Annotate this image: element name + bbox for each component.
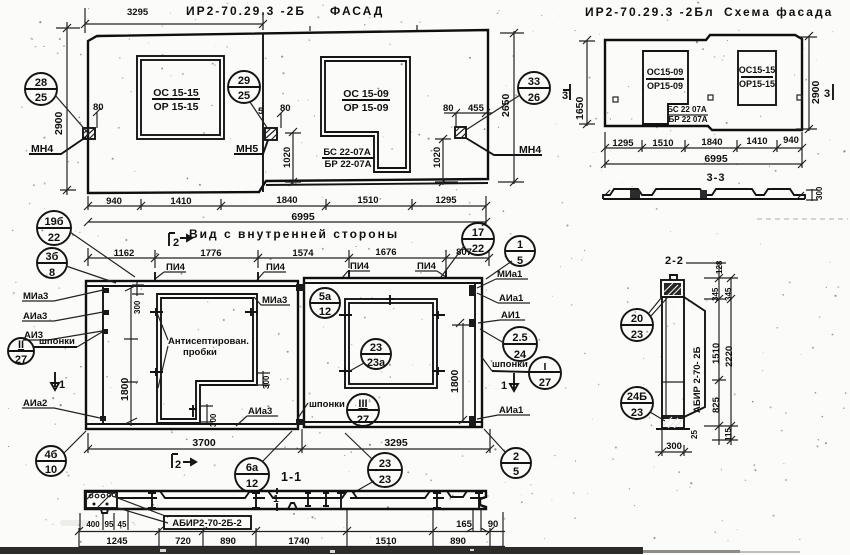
svg-text:2900: 2900	[810, 80, 822, 104]
svg-text:1574: 1574	[292, 248, 314, 259]
svg-text:1295: 1295	[612, 138, 634, 149]
svg-text:300: 300	[262, 375, 271, 389]
svg-text:19б: 19б	[44, 216, 63, 228]
svg-text:ОР15-09: ОР15-09	[647, 81, 683, 91]
svg-text:2: 2	[175, 459, 181, 471]
svg-text:23: 23	[379, 458, 391, 470]
svg-text:1410: 1410	[746, 136, 767, 147]
svg-text:ОС 15-09: ОС 15-09	[343, 88, 389, 100]
svg-text:28: 28	[35, 77, 47, 89]
svg-text:12: 12	[319, 306, 331, 318]
svg-text:АИ1: АИ1	[501, 310, 521, 321]
svg-text:3: 3	[824, 88, 830, 100]
svg-text:8: 8	[49, 267, 55, 279]
svg-text:БС 22-07А: БС 22-07А	[323, 147, 371, 158]
svg-text:115: 115	[724, 428, 733, 441]
svg-text:5а: 5а	[319, 291, 332, 303]
svg-text:1510: 1510	[652, 138, 673, 149]
svg-text:940: 940	[106, 196, 122, 207]
svg-text:27: 27	[539, 377, 551, 389]
svg-text:22: 22	[472, 243, 484, 255]
svg-text:ПИ4: ПИ4	[417, 261, 437, 272]
svg-text:1740: 1740	[288, 536, 309, 547]
svg-text:2: 2	[513, 451, 519, 463]
svg-text:3295: 3295	[384, 437, 408, 449]
svg-text:Вид с внутренней стороны: Вид с внутренней стороны	[189, 227, 399, 241]
svg-text:БР 22 07А: БР 22 07А	[668, 115, 707, 124]
svg-text:1020: 1020	[282, 147, 293, 168]
svg-text:23: 23	[631, 329, 643, 341]
svg-text:400: 400	[86, 520, 100, 529]
svg-text:128: 128	[715, 260, 724, 274]
svg-text:95: 95	[105, 520, 114, 529]
svg-text:1: 1	[517, 239, 523, 251]
svg-text:1510: 1510	[375, 536, 396, 547]
svg-text:890: 890	[450, 536, 466, 547]
svg-text:25: 25	[238, 90, 250, 102]
svg-text:300: 300	[666, 441, 682, 452]
svg-text:3: 3	[562, 90, 568, 102]
svg-text:80: 80	[443, 103, 454, 114]
svg-text:1: 1	[59, 379, 65, 391]
svg-text:ОС 15-15: ОС 15-15	[153, 87, 199, 99]
svg-text:1650: 1650	[574, 96, 586, 120]
svg-text:23: 23	[631, 407, 643, 419]
svg-text:1410: 1410	[170, 196, 191, 207]
svg-text:12: 12	[246, 478, 258, 490]
svg-text:МИа3: МИа3	[23, 291, 48, 302]
svg-text:1-1: 1-1	[281, 470, 302, 484]
svg-text:1295: 1295	[435, 195, 457, 206]
svg-text:БС 22 07А: БС 22 07А	[667, 105, 707, 114]
svg-text:25: 25	[690, 430, 699, 439]
svg-text:ПИ4: ПИ4	[166, 262, 186, 273]
svg-text:23а: 23а	[367, 357, 386, 369]
svg-text:6995: 6995	[704, 153, 728, 165]
svg-text:2: 2	[173, 237, 179, 249]
svg-text:1676: 1676	[375, 247, 396, 258]
svg-text:II: II	[18, 339, 24, 351]
svg-text:МИа1: МИа1	[497, 269, 523, 280]
svg-text:5: 5	[517, 255, 523, 267]
svg-text:1840: 1840	[276, 195, 297, 206]
svg-text:МИа3: МИа3	[262, 295, 287, 306]
svg-text:БР 22-07А: БР 22-07А	[325, 159, 372, 170]
svg-text:1: 1	[273, 493, 279, 505]
svg-text:ОР15-15: ОР15-15	[739, 79, 775, 89]
svg-text:23: 23	[370, 342, 382, 354]
svg-text:345: 345	[724, 287, 733, 301]
svg-text:шпонки: шпонки	[492, 359, 528, 370]
svg-text:10: 10	[45, 464, 57, 476]
svg-text:26: 26	[528, 92, 540, 104]
svg-text:Антисептирован.: Антисептирован.	[168, 336, 249, 347]
svg-text:АИа1: АИа1	[499, 405, 524, 416]
svg-text:1776: 1776	[200, 248, 221, 259]
svg-text:АИа2: АИа2	[23, 398, 47, 409]
svg-text:45: 45	[118, 520, 127, 529]
svg-text:300: 300	[209, 413, 218, 427]
svg-text:345: 345	[711, 287, 720, 301]
svg-text:22: 22	[48, 232, 60, 244]
svg-text:шпонки: шпонки	[309, 399, 345, 410]
svg-text:АИа1: АИа1	[499, 293, 524, 304]
svg-text:4б: 4б	[45, 449, 58, 461]
svg-text:ФАСАД: ФАСАД	[330, 4, 384, 18]
svg-text:ОР 15-09: ОР 15-09	[344, 102, 389, 114]
svg-text:шпонки: шпонки	[39, 336, 75, 347]
svg-text:3б: 3б	[46, 251, 59, 263]
svg-text:300: 300	[133, 300, 142, 314]
svg-text:ОР 15-15: ОР 15-15	[154, 101, 199, 113]
svg-text:АИа3: АИа3	[248, 406, 272, 417]
svg-text:ПИ4: ПИ4	[350, 261, 370, 272]
svg-text:1245: 1245	[106, 536, 128, 547]
svg-text:2900: 2900	[53, 111, 65, 135]
svg-text:1020: 1020	[432, 147, 443, 168]
svg-text:825: 825	[711, 396, 722, 413]
svg-text:940: 940	[783, 135, 799, 146]
svg-text:3700: 3700	[192, 437, 216, 449]
svg-text:АБИР 2-70- 2Б: АБИР 2-70- 2Б	[692, 346, 703, 413]
svg-text:III: III	[358, 398, 367, 410]
svg-text:27: 27	[15, 354, 27, 366]
svg-text:ИР2-70.29.3 -2Бл: ИР2-70.29.3 -2Бл	[585, 5, 715, 19]
svg-text:20: 20	[631, 313, 643, 325]
svg-text:165: 165	[456, 519, 473, 530]
svg-text:ОС15-15: ОС15-15	[739, 65, 776, 75]
svg-text:1: 1	[501, 380, 507, 392]
svg-text:2-2: 2-2	[665, 255, 684, 267]
svg-text:29: 29	[238, 75, 250, 87]
svg-text:3295: 3295	[127, 7, 149, 18]
svg-text:Схема фасада: Схема фасада	[724, 5, 833, 19]
svg-text:6995: 6995	[291, 211, 315, 223]
svg-text:720: 720	[175, 536, 191, 547]
svg-text:2.5: 2.5	[512, 332, 527, 344]
svg-text:ИР2-70.29.3 -2Б: ИР2-70.29.3 -2Б	[186, 4, 306, 18]
svg-text:27: 27	[357, 414, 369, 426]
svg-text:5: 5	[513, 466, 519, 478]
svg-text:25: 25	[35, 92, 47, 104]
svg-text:1840: 1840	[701, 137, 722, 148]
svg-text:2650: 2650	[500, 93, 512, 117]
svg-text:24Б: 24Б	[627, 391, 647, 403]
svg-text:17: 17	[472, 227, 484, 239]
svg-text:1800: 1800	[119, 377, 131, 401]
svg-text:1800: 1800	[449, 369, 461, 393]
svg-text:I: I	[544, 361, 547, 373]
svg-text:890: 890	[220, 536, 236, 547]
svg-text:1510: 1510	[711, 343, 722, 364]
svg-text:3-3: 3-3	[707, 172, 726, 184]
svg-text:455: 455	[468, 103, 485, 114]
svg-text:ПИ4: ПИ4	[266, 262, 286, 273]
svg-text:пробки: пробки	[183, 347, 217, 358]
svg-text:2220: 2220	[724, 346, 735, 367]
svg-text:23: 23	[379, 474, 391, 486]
svg-text:33: 33	[528, 76, 540, 88]
svg-text:1162: 1162	[114, 248, 135, 259]
svg-text:1510: 1510	[357, 195, 378, 206]
svg-text:300: 300	[815, 186, 824, 200]
svg-text:АИа3: АИа3	[23, 311, 47, 322]
svg-text:6а: 6а	[246, 462, 259, 474]
svg-text:ОС15-09: ОС15-09	[647, 67, 684, 77]
